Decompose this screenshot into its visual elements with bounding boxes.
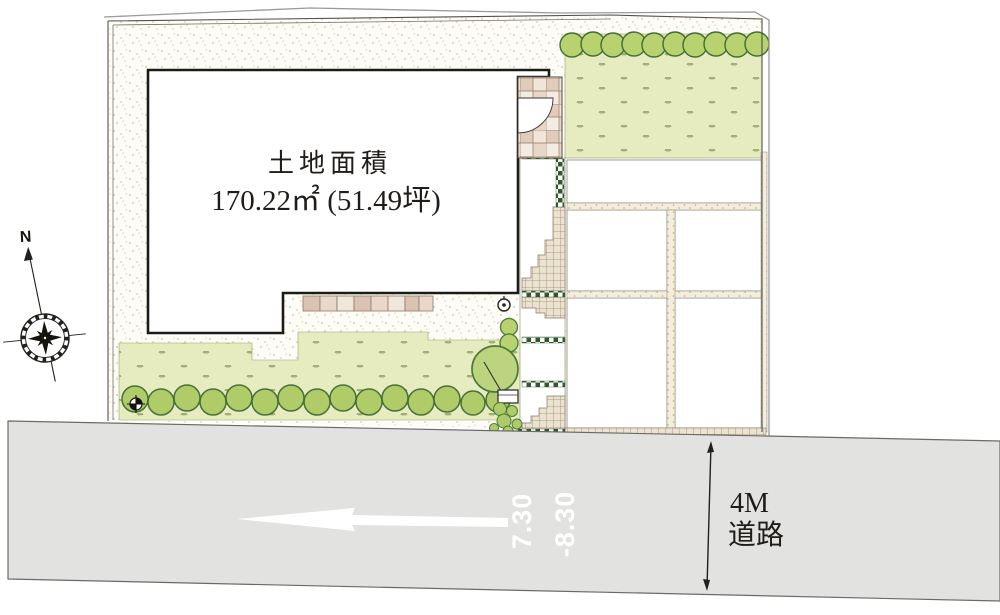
parking-area xyxy=(567,152,767,432)
parking-panel xyxy=(567,160,762,203)
planter-box xyxy=(498,390,518,403)
large-tree-icon xyxy=(472,346,518,392)
compass-north-label: N xyxy=(19,229,31,247)
entrance-porch xyxy=(518,77,562,158)
hedge-strip xyxy=(522,337,565,343)
approach-path xyxy=(518,153,565,437)
road-width-label: 4M xyxy=(730,488,769,519)
parking-panel xyxy=(567,210,667,291)
terrace-tiles xyxy=(303,296,433,311)
road-elevation-a: 7.30 xyxy=(507,493,537,550)
site-plan: 7.30 -8.30 4M 道路 N 土地面積 170.22㎡ (51.49坪) xyxy=(0,0,1000,615)
compass-rose: N xyxy=(0,226,88,384)
parking-divider xyxy=(567,291,762,298)
land-area-label: 土地面積 xyxy=(268,149,392,178)
road-elevation-b: -8.30 xyxy=(550,491,580,558)
parking-panel xyxy=(675,298,762,428)
parking-divider xyxy=(667,210,675,428)
road-surface xyxy=(8,421,1000,601)
road-name-label: 道路 xyxy=(728,519,784,551)
road: 7.30 -8.30 4M 道路 xyxy=(8,421,1000,601)
land-area-value: 170.22㎡ (51.49坪) xyxy=(211,184,441,217)
north-arrowhead xyxy=(23,247,33,261)
parking-divider xyxy=(567,203,762,210)
hedge-strip xyxy=(522,381,565,387)
hedge-strip xyxy=(522,291,565,297)
parking-panel xyxy=(567,298,667,428)
parking-panel xyxy=(675,210,762,291)
hedge-strip xyxy=(556,159,564,207)
site-plan-canvas: 7.30 -8.30 4M 道路 N 土地面積 170.22㎡ (51.49坪) xyxy=(0,0,1000,615)
small-tree-icon xyxy=(501,319,518,336)
